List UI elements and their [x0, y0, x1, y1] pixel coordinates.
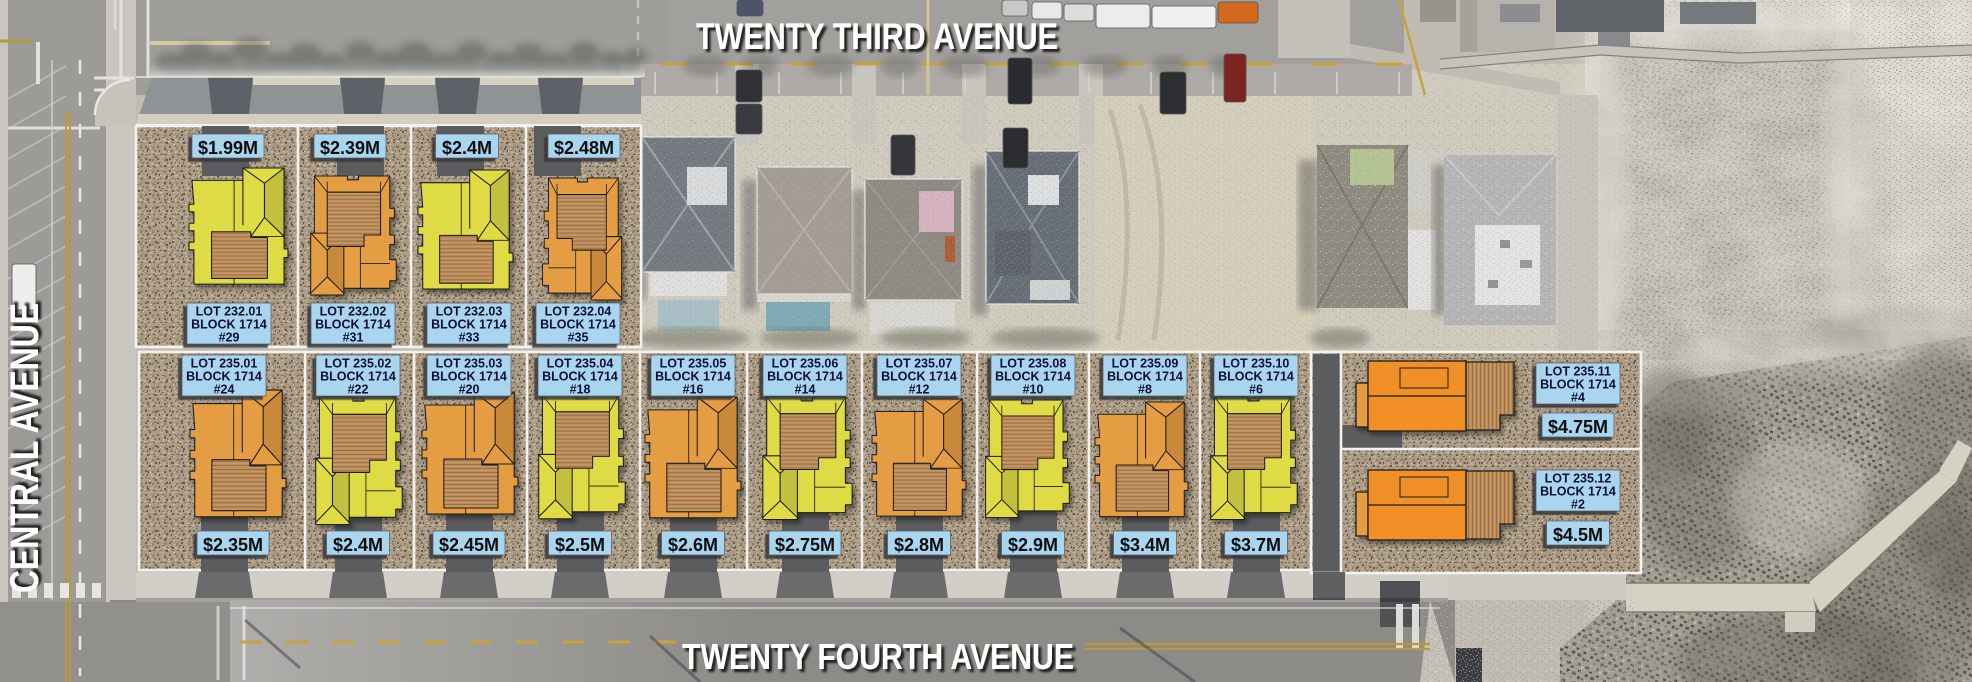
svg-text:BLOCK 1714: BLOCK 1714 [320, 370, 396, 384]
svg-text:BLOCK 1714: BLOCK 1714 [995, 370, 1071, 384]
svg-text:$2.39M: $2.39M [320, 138, 380, 158]
svg-text:BLOCK 1714: BLOCK 1714 [315, 318, 391, 332]
svg-text:#8: #8 [1138, 383, 1152, 397]
svg-text:BLOCK 1714: BLOCK 1714 [542, 370, 618, 384]
svg-text:BLOCK 1714: BLOCK 1714 [881, 370, 957, 384]
svg-text:LOT 235.11: LOT 235.11 [1545, 365, 1611, 379]
svg-text:BLOCK 1714: BLOCK 1714 [191, 318, 267, 332]
svg-text:BLOCK 1714: BLOCK 1714 [540, 318, 616, 332]
svg-text:TWENTY THIRD AVENUE: TWENTY THIRD AVENUE [696, 16, 1058, 57]
svg-text:$2.48M: $2.48M [554, 138, 614, 158]
svg-text:LOT 232.01: LOT 232.01 [196, 305, 263, 319]
svg-text:#16: #16 [683, 383, 704, 397]
svg-text:$1.99M: $1.99M [198, 138, 258, 158]
svg-text:LOT 235.06: LOT 235.06 [772, 357, 839, 371]
svg-text:BLOCK 1714: BLOCK 1714 [186, 370, 262, 384]
svg-text:$4.75M: $4.75M [1548, 417, 1608, 437]
svg-text:$2.45M: $2.45M [439, 535, 499, 555]
svg-text:#22: #22 [348, 383, 369, 397]
svg-text:BLOCK 1714: BLOCK 1714 [655, 370, 731, 384]
svg-text:$2.8M: $2.8M [894, 535, 944, 555]
svg-text:LOT 235.10: LOT 235.10 [1223, 357, 1290, 371]
svg-text:#18: #18 [570, 383, 591, 397]
svg-text:LOT 235.01: LOT 235.01 [191, 357, 258, 371]
svg-text:CENTRAL AVENUE: CENTRAL AVENUE [3, 303, 47, 593]
svg-text:$2.5M: $2.5M [555, 535, 605, 555]
svg-text:#20: #20 [459, 383, 480, 397]
svg-text:BLOCK 1714: BLOCK 1714 [1540, 485, 1616, 499]
svg-text:BLOCK 1714: BLOCK 1714 [431, 370, 507, 384]
svg-text:#6: #6 [1249, 383, 1263, 397]
svg-text:BLOCK 1714: BLOCK 1714 [1218, 370, 1294, 384]
svg-text:$2.9M: $2.9M [1008, 535, 1058, 555]
svg-text:#4: #4 [1571, 391, 1585, 405]
svg-text:$3.7M: $3.7M [1231, 535, 1281, 555]
svg-text:#33: #33 [459, 331, 480, 345]
svg-text:#14: #14 [795, 383, 816, 397]
svg-text:$2.4M: $2.4M [442, 138, 492, 158]
svg-text:$2.35M: $2.35M [203, 535, 263, 555]
svg-text:$2.6M: $2.6M [668, 535, 718, 555]
svg-text:BLOCK 1714: BLOCK 1714 [767, 370, 843, 384]
svg-text:LOT 235.09: LOT 235.09 [1112, 357, 1179, 371]
svg-text:$2.4M: $2.4M [333, 535, 383, 555]
svg-text:$3.4M: $3.4M [1120, 535, 1170, 555]
svg-text:LOT 235.04: LOT 235.04 [547, 357, 614, 371]
svg-text:BLOCK 1714: BLOCK 1714 [1540, 378, 1616, 392]
svg-text:LOT 232.03: LOT 232.03 [436, 305, 503, 319]
svg-text:BLOCK 1714: BLOCK 1714 [1107, 370, 1183, 384]
svg-text:LOT 235.07: LOT 235.07 [886, 357, 953, 371]
svg-text:LOT 235.12: LOT 235.12 [1545, 472, 1612, 486]
svg-text:LOT 235.02: LOT 235.02 [325, 357, 392, 371]
svg-text:#31: #31 [343, 331, 364, 345]
svg-text:#35: #35 [568, 331, 589, 345]
svg-text:LOT 232.02: LOT 232.02 [320, 305, 387, 319]
svg-text:$2.75M: $2.75M [775, 535, 835, 555]
svg-text:#10: #10 [1023, 383, 1044, 397]
svg-text:LOT 232.04: LOT 232.04 [545, 305, 612, 319]
svg-text:#29: #29 [219, 331, 240, 345]
svg-text:#24: #24 [214, 383, 235, 397]
svg-text:TWENTY FOURTH AVENUE: TWENTY FOURTH AVENUE [682, 636, 1074, 677]
svg-text:LOT 235.03: LOT 235.03 [436, 357, 503, 371]
svg-text:LOT 235.08: LOT 235.08 [1000, 357, 1067, 371]
svg-text:#2: #2 [1571, 498, 1585, 512]
svg-text:$4.5M: $4.5M [1553, 525, 1603, 545]
svg-text:BLOCK 1714: BLOCK 1714 [431, 318, 507, 332]
svg-text:#12: #12 [909, 383, 930, 397]
svg-text:LOT 235.05: LOT 235.05 [660, 357, 727, 371]
